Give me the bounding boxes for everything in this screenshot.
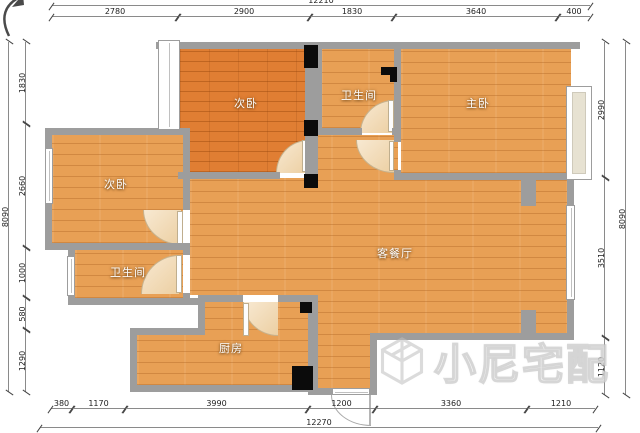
dim-right-overall: 8090 [625, 42, 626, 395]
window-bathroom-left [67, 256, 75, 296]
room-master-bedroom-floor [401, 49, 571, 173]
room-label-living-dining: 客餐厅 [377, 245, 413, 261]
dim-top-seg-2: 2900 [178, 16, 310, 17]
dim-top-seg-3: 1830 [310, 16, 394, 17]
column-kitchen-1 [300, 302, 312, 313]
column-kitchen-2 [292, 366, 313, 390]
wall-top [156, 42, 580, 49]
wall-vestibule-right [370, 333, 377, 395]
door-leaf-entry [369, 395, 371, 425]
wall-living-bottom [370, 333, 574, 340]
dim-bottom-seg-6: 1210 [527, 408, 595, 409]
dim-left-seg-3: 1000 [25, 248, 26, 298]
door-leaf-bathroom-left [176, 255, 182, 293]
window-living-right [566, 205, 575, 300]
door-leaf-kitchen [243, 303, 249, 336]
column-bathroom-top-b [390, 75, 397, 82]
dim-bottom-seg-2: 1170 [72, 408, 125, 409]
dim-bottom-seg-1: 380 [51, 408, 72, 409]
wall-kitchen-left [130, 328, 137, 392]
column-bedroom-top-2 [304, 120, 318, 136]
floor-plan-canvas: 次卧 卫生间 主卧 次卧 卫生间 客餐厅 厨房 12210 2780 2900 … [0, 0, 640, 433]
column-bathroom-top-a [381, 67, 397, 75]
window-bedroom-top [158, 40, 180, 130]
column-hall [304, 174, 318, 188]
room-label-master-bedroom: 主卧 [466, 95, 490, 111]
dim-right-seg-1: 2990 [604, 42, 605, 178]
dim-right-seg-2: 3510 [604, 178, 605, 338]
dim-top-seg-4: 3640 [394, 16, 558, 17]
wall-bathroom-top-bottom-b [392, 128, 401, 135]
room-label-bedroom-top: 次卧 [234, 95, 258, 111]
wall-bedroom-left-right-c [183, 293, 190, 305]
door-leaf-master-bedroom [389, 141, 394, 171]
dim-left-seg-4: 580 [25, 298, 26, 330]
window-master-bay-sill [572, 92, 586, 174]
dim-top-seg-5: 400 [558, 16, 590, 17]
room-label-bathroom-left: 卫生间 [110, 264, 146, 280]
room-label-bedroom-left: 次卧 [104, 176, 128, 192]
wall-notch-right [198, 302, 205, 335]
wall-kitchen-top-step [130, 328, 205, 335]
window-entry-threshold [332, 388, 370, 395]
compass-icon [0, 0, 26, 38]
wall-bedroom-left-bottom [45, 243, 190, 250]
wall-bedroom-top-bottom-a [178, 172, 280, 179]
wall-bathroom-top-bottom-a [315, 128, 362, 135]
dim-top-seg-1: 2780 [52, 16, 178, 17]
dim-bottom-seg-4: 1200 [308, 408, 375, 409]
door-leaf-bedroom-left [177, 211, 183, 245]
wall-kitchen-bottom [130, 385, 318, 392]
dim-bottom-overall: 12270 [40, 427, 598, 428]
wall-kitchen-top-b [278, 295, 310, 302]
watermark-cube-icon [376, 335, 428, 387]
wall-bedroom-left-right-b [183, 243, 190, 255]
window-bedroom-left [45, 148, 53, 204]
dim-left-overall: 8090 [8, 42, 9, 392]
room-label-kitchen: 厨房 [219, 340, 243, 356]
dim-bottom-seg-5: 3360 [375, 408, 527, 409]
dim-left-seg-5: 1290 [25, 330, 26, 392]
room-label-bathroom-top: 卫生间 [341, 87, 377, 103]
dim-bottom-seg-3: 3990 [125, 408, 308, 409]
dim-left-seg-2: 2660 [25, 124, 26, 248]
column-bedroom-top-1 [304, 45, 318, 68]
dim-right-seg-3: 1120 [604, 338, 605, 395]
wall-stub-upper [521, 180, 536, 206]
dim-left-seg-1: 1830 [25, 42, 26, 124]
dim-top-overall: 12210 [52, 5, 590, 6]
wall-master-bottom [394, 173, 574, 180]
wall-bedroom-left-right-a [183, 128, 190, 210]
